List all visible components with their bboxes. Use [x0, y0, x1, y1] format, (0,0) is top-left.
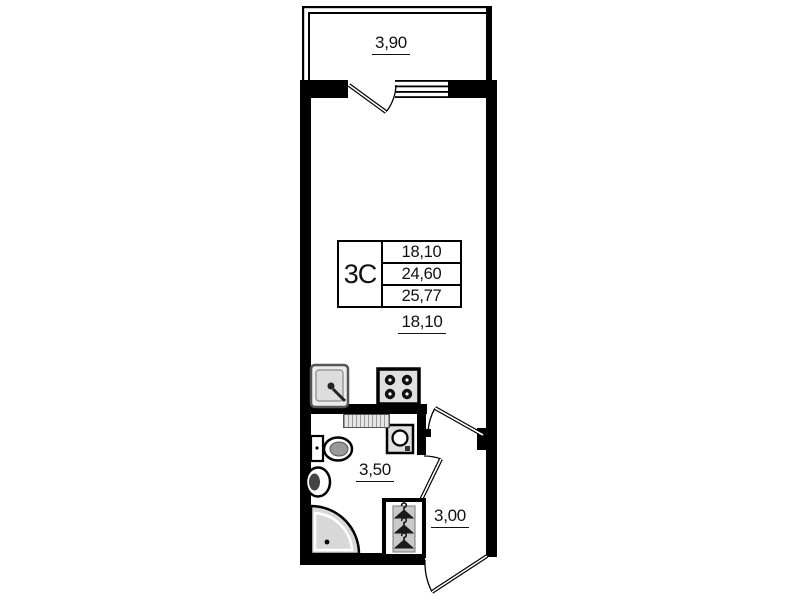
toilet-icon [311, 436, 352, 461]
balcony-door-icon [349, 85, 396, 112]
washing-machine-icon [387, 425, 413, 453]
hallway-area-label: 3,00 [424, 506, 476, 528]
entry-door-icon [425, 556, 487, 592]
unit-area-row: 24,60 [383, 262, 460, 284]
unit-info-card: 3C 18,10 24,60 25,77 [337, 240, 462, 308]
unit-area-row: 25,77 [383, 284, 460, 306]
bathroom-door-icon [420, 456, 441, 502]
unit-area-row: 18,10 [383, 242, 460, 262]
living-area-label: 18,10 [391, 312, 453, 334]
unit-type-label: 3C [339, 242, 383, 306]
wash-basin-icon [306, 468, 330, 497]
kitchen-sink-icon [311, 365, 348, 407]
hall-door-icon [428, 408, 483, 435]
balcony-area-label: 3,90 [361, 33, 421, 55]
corner-shower-icon [311, 506, 359, 554]
stove-icon [378, 369, 419, 404]
window [395, 80, 448, 98]
vent-shaft-icon [343, 414, 390, 428]
floor-plan-canvas: 3C 18,10 24,60 25,77 3,90 18,10 3,50 3,0… [0, 0, 799, 600]
wardrobe-icon [384, 500, 424, 556]
bathroom-area-label: 3,50 [349, 460, 401, 482]
unit-areas-table: 18,10 24,60 25,77 [383, 242, 460, 306]
